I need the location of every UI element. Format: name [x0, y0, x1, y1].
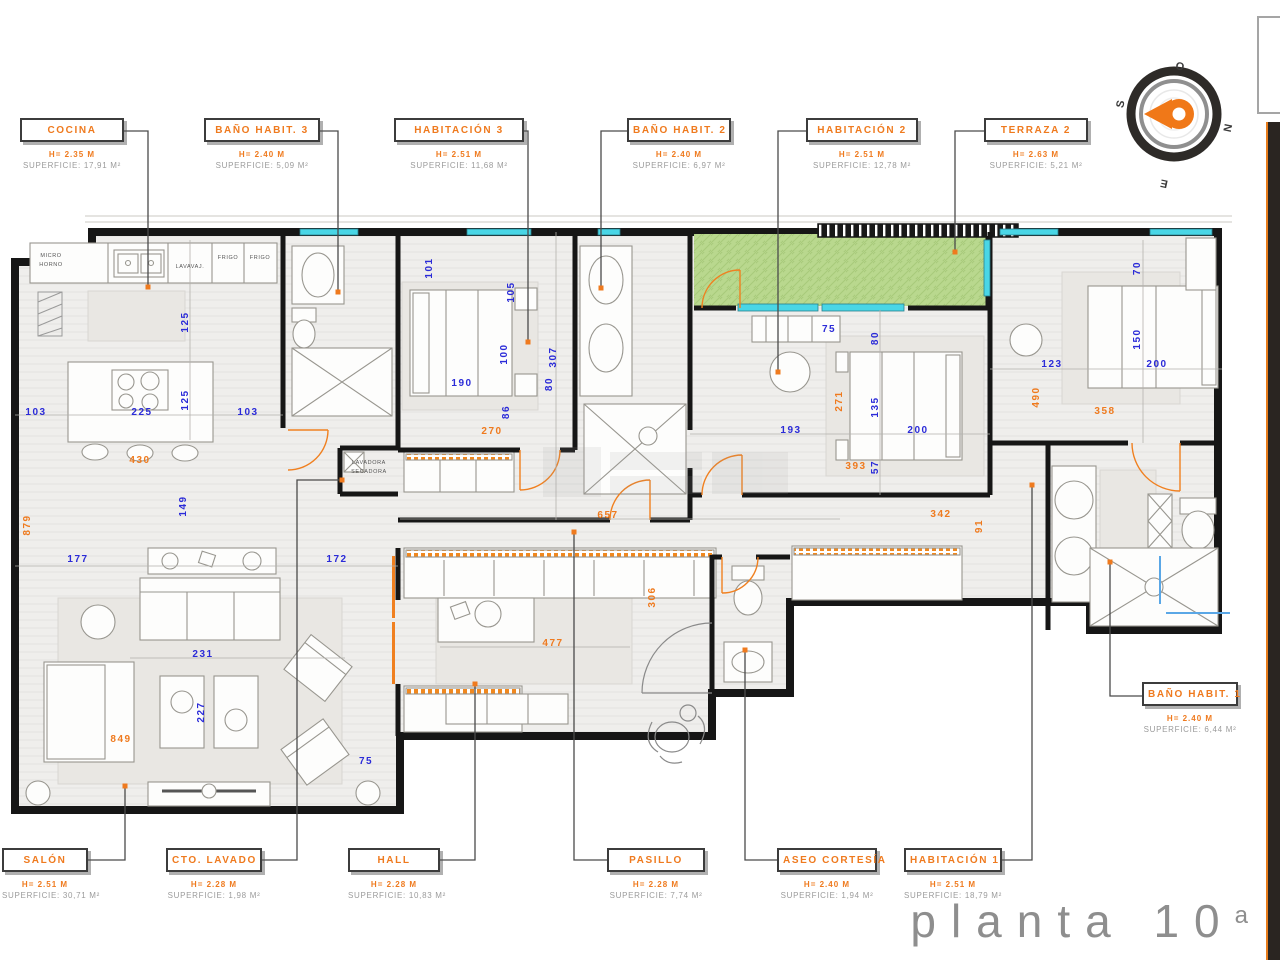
room-area: SUPERFICIE: 10,83 M² [348, 891, 440, 900]
room-height: H= 2.63 M [984, 150, 1088, 159]
room-area: SUPERFICIE: 5,21 M² [984, 161, 1088, 170]
room-card-bano-habit-3: BAÑO HABIT. 3H= 2.40 MSUPERFICIE: 5,09 M… [204, 118, 320, 170]
salon-slider2 [392, 622, 395, 684]
dim-blue: 193 [780, 425, 801, 436]
plan-title-sup: a [1235, 902, 1250, 929]
room-height: H= 2.28 M [166, 880, 262, 889]
room-name: COCINA [20, 118, 124, 142]
appliance-label: LAVAVAJ. [176, 264, 205, 270]
room-name: BAÑO HABIT. 3 [204, 118, 320, 142]
leader-dot [340, 478, 345, 483]
room-area: SUPERFICIE: 6,97 M² [627, 161, 731, 170]
room-area: SUPERFICIE: 1,98 M² [166, 891, 262, 900]
compass: O N E S [1114, 60, 1233, 189]
dim-blue: 125 [180, 311, 191, 332]
compass-north: N [1220, 123, 1233, 133]
dim-orange: 271 [834, 390, 845, 411]
dim-blue: 190 [451, 378, 472, 389]
room-card-cocina: COCINAH= 2.35 MSUPERFICIE: 17,91 M² [20, 118, 124, 170]
room-height: H= 2.51 M [904, 880, 1002, 889]
dim-blue: 80 [544, 377, 555, 391]
leader-dot [599, 286, 604, 291]
dim-orange: 477 [542, 638, 563, 649]
appliance-label: FRIGO [250, 255, 271, 261]
room-card-salon: SALÓNH= 2.51 MSUPERFICIE: 30,71 M² [2, 848, 88, 900]
room-height: H= 2.40 M [777, 880, 877, 889]
dim-orange: 657 [597, 510, 618, 521]
appliance-label: FRIGO [218, 255, 239, 261]
room-card-bano-habit-1: BAÑO HABIT. 1H= 2.40 MSUPERFICIE: 6,44 M… [1142, 682, 1238, 734]
room-name: PASILLO [607, 848, 705, 872]
room-name: CTO. LAVADO [166, 848, 262, 872]
compass-south: S [1114, 99, 1127, 109]
dim-blue: 307 [548, 346, 559, 367]
leader-dot [1030, 483, 1035, 488]
parapet-lines [85, 216, 1232, 222]
leader-dot [776, 370, 781, 375]
dim-blue: 75 [359, 756, 373, 767]
room-name: ASEO CORTESÍA [777, 848, 877, 872]
room-area: SUPERFICIE: 12,78 M² [806, 161, 918, 170]
room-name: SALÓN [2, 848, 88, 872]
dim-blue: 80 [870, 331, 881, 345]
dim-blue: 86 [501, 405, 512, 419]
dim-orange: 270 [481, 426, 502, 437]
room-card-habitacion-1: HABITACIÓN 1H= 2.51 MSUPERFICIE: 18,79 M… [904, 848, 1002, 900]
dim-blue: 200 [907, 425, 928, 436]
room-name: HABITACIÓN 1 [904, 848, 1002, 872]
room-card-cto-lavado: CTO. LAVADOH= 2.28 MSUPERFICIE: 1,98 M² [166, 848, 262, 900]
dim-blue: 135 [870, 396, 881, 417]
plan-title-text: planta 10 [910, 895, 1234, 947]
leader-dot [743, 648, 748, 653]
dim-blue: 70 [1132, 261, 1143, 275]
room-area: SUPERFICIE: 11,68 M² [394, 161, 524, 170]
dim-blue: 200 [1146, 359, 1167, 370]
appliance-label: HORNO [39, 262, 63, 268]
dim-blue: 100 [499, 343, 510, 364]
dim-blue: 125 [180, 389, 191, 410]
room-height: H= 2.35 M [20, 150, 124, 159]
dim-orange: 91 [974, 519, 985, 533]
dim-orange: 879 [22, 514, 33, 535]
dim-blue: 103 [25, 407, 46, 418]
leader-dot [1108, 560, 1113, 565]
dim-blue: 105 [506, 281, 517, 302]
room-area: SUPERFICIE: 30,71 M² [2, 891, 88, 900]
room-name: HABITACIÓN 3 [394, 118, 524, 142]
leader-dot [572, 530, 577, 535]
room-area: SUPERFICIE: 7,74 M² [607, 891, 705, 900]
room-height: H= 2.51 M [394, 150, 524, 159]
right-edge-bar [1266, 122, 1280, 960]
dim-orange: 358 [1094, 406, 1115, 417]
room-area: SUPERFICIE: 1,94 M² [777, 891, 877, 900]
room-name: BAÑO HABIT. 2 [627, 118, 731, 142]
dim-blue: 123 [1041, 359, 1062, 370]
dim-blue: 231 [192, 649, 213, 660]
room-card-pasillo: PASILLOH= 2.28 MSUPERFICIE: 7,74 M² [607, 848, 705, 900]
room-height: H= 2.51 M [2, 880, 88, 889]
room-area: SUPERFICIE: 17,91 M² [20, 161, 124, 170]
dim-orange: 342 [930, 509, 951, 520]
compass-east: E [1159, 176, 1169, 189]
dim-orange: 306 [647, 586, 658, 607]
dim-blue: 57 [870, 460, 881, 474]
room-height: H= 2.51 M [806, 150, 918, 159]
room-card-aseo-cortesia: ASEO CORTESÍAH= 2.40 MSUPERFICIE: 1,94 M… [777, 848, 877, 900]
dim-blue: 101 [424, 257, 435, 278]
room-name: TERRAZA 2 [984, 118, 1088, 142]
room-height: H= 2.40 M [627, 150, 731, 159]
room-card-habitacion-3: HABITACIÓN 3H= 2.51 MSUPERFICIE: 11,68 M… [394, 118, 524, 170]
plan-title: planta 10a [910, 894, 1250, 948]
room-height: H= 2.40 M [1142, 714, 1238, 723]
room-height: H= 2.28 M [607, 880, 705, 889]
salon-slider [392, 556, 395, 618]
room-card-bano-habit-2: BAÑO HABIT. 2H= 2.40 MSUPERFICIE: 6,97 M… [627, 118, 731, 170]
leader-dot [953, 250, 958, 255]
dim-blue: 149 [178, 495, 189, 516]
dim-orange: 490 [1031, 386, 1042, 407]
room-card-terraza-2: TERRAZA 2H= 2.63 MSUPERFICIE: 5,21 M² [984, 118, 1088, 170]
dim-blue: 103 [237, 407, 258, 418]
dim-blue: 172 [326, 554, 347, 565]
room-card-hall: HALLH= 2.28 MSUPERFICIE: 10,83 M² [348, 848, 440, 900]
leader-dot [526, 340, 531, 345]
dim-blue: 227 [196, 701, 207, 722]
dim-orange: 849 [110, 734, 131, 745]
room-name: BAÑO HABIT. 1 [1142, 682, 1238, 706]
room-area: SUPERFICIE: 6,44 M² [1142, 725, 1238, 734]
leader-dot [146, 285, 151, 290]
kitchen-counter [30, 243, 277, 283]
appliance-label: LAVADORA [352, 460, 386, 466]
appliance-label: MICRO [40, 253, 61, 259]
leader-dot [473, 682, 478, 687]
room-name: HALL [348, 848, 440, 872]
dim-orange: 393 [845, 461, 866, 472]
room-area: SUPERFICIE: 5,09 M² [204, 161, 320, 170]
dim-blue: 225 [131, 407, 152, 418]
dim-orange: 430 [129, 455, 150, 466]
leader-dot [336, 290, 341, 295]
dim-blue: 177 [67, 554, 88, 565]
room-name: HABITACIÓN 2 [806, 118, 918, 142]
room-height: H= 2.40 M [204, 150, 320, 159]
dim-blue: 150 [1132, 328, 1143, 349]
leader-dot [123, 784, 128, 789]
appliance-label: SECADORA [351, 469, 387, 475]
dim-blue: 75 [822, 324, 836, 335]
top-right-partial-box [1257, 16, 1280, 114]
room-card-habitacion-2: HABITACIÓN 2H= 2.51 MSUPERFICIE: 12,78 M… [806, 118, 918, 170]
room-height: H= 2.28 M [348, 880, 440, 889]
bedroom3-wardrobe [404, 452, 514, 492]
